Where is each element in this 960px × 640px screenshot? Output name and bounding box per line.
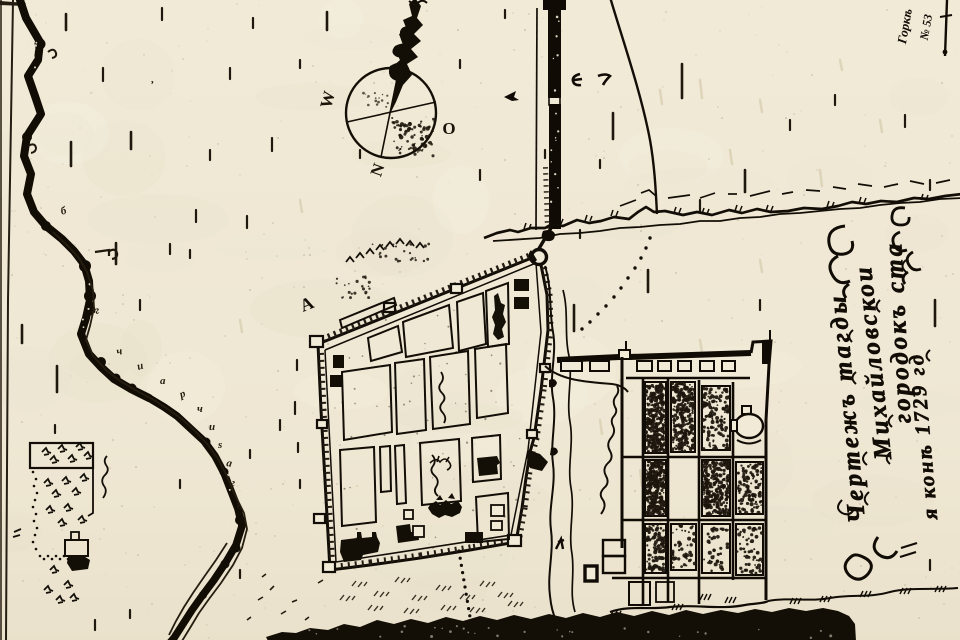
svg-text:ч: ч <box>197 403 203 415</box>
svg-text:ʼ: ʼ <box>150 79 154 91</box>
svg-text:O: O <box>442 119 455 138</box>
svg-text:ѕ: ѕ <box>217 439 222 451</box>
svg-text:г: г <box>231 477 235 489</box>
svg-text:а: а <box>160 375 166 387</box>
svg-text:и: и <box>209 421 215 433</box>
